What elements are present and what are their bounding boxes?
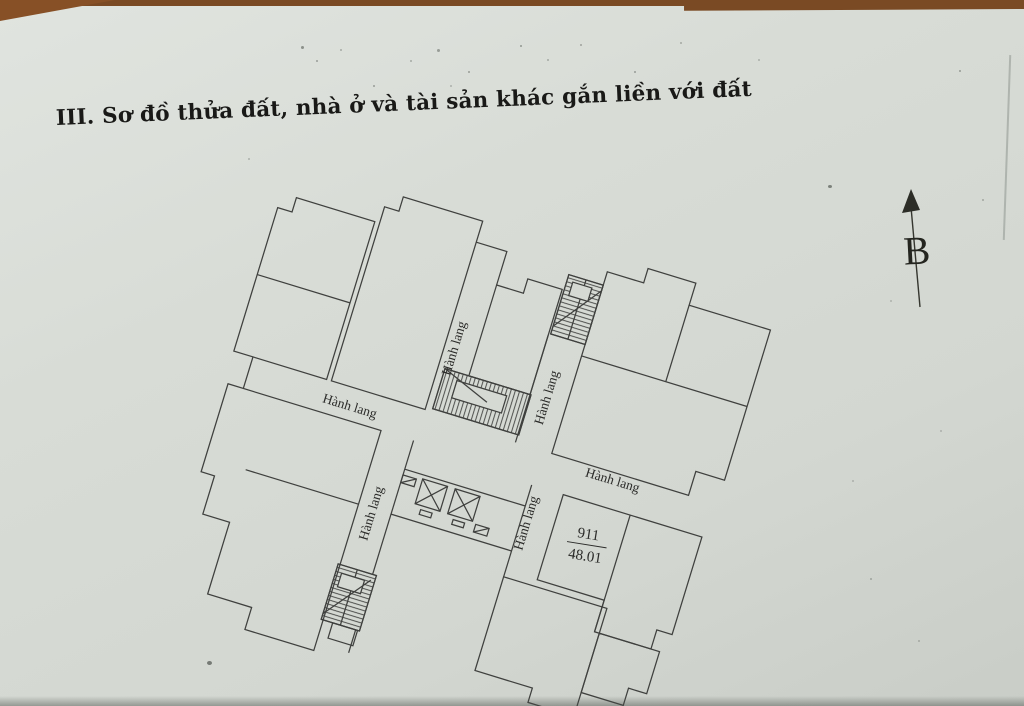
elevator-door-pockets bbox=[393, 475, 497, 536]
corridor-label-1: Hành lang bbox=[438, 319, 469, 377]
unit-area: 48.01 bbox=[567, 546, 603, 567]
scan-speck bbox=[852, 480, 854, 482]
scan-speck bbox=[959, 70, 961, 72]
scan-speck bbox=[547, 59, 549, 61]
wall-divider bbox=[246, 470, 359, 504]
scan-speck bbox=[580, 44, 582, 46]
scan-speck bbox=[634, 71, 636, 73]
north-label: B bbox=[902, 227, 931, 273]
north-arrow: B bbox=[902, 189, 931, 307]
scan-speck bbox=[207, 661, 212, 665]
floor-plan: Hành lang Hành lang Hành lang Hành lang … bbox=[157, 160, 777, 706]
staircase-symbol-southwest bbox=[321, 564, 376, 631]
scan-speck bbox=[437, 49, 440, 52]
scan-speck bbox=[890, 300, 892, 302]
scan-speck bbox=[373, 85, 375, 87]
corridor-label-2: Hành lang bbox=[321, 391, 379, 422]
scan-speck bbox=[301, 46, 304, 49]
scan-speck bbox=[828, 185, 832, 188]
scan-speck bbox=[680, 42, 682, 44]
scan-speck bbox=[450, 85, 452, 87]
scan-speck bbox=[758, 59, 760, 61]
staircase-symbol-central bbox=[433, 369, 531, 435]
staircase-symbol-northeast bbox=[551, 275, 604, 345]
wall-divider bbox=[582, 356, 747, 407]
floor-plan-drawing: Hành lang Hành lang Hành lang Hành lang … bbox=[0, 0, 1024, 706]
lobby-wall bbox=[405, 469, 525, 506]
lobby-wall bbox=[391, 514, 511, 551]
scanned-certificate-page: III. Sơ đồ thửa đất, nhà ở và tài sản kh… bbox=[0, 0, 1024, 706]
scan-speck bbox=[940, 430, 942, 432]
scan-speck bbox=[918, 640, 920, 642]
scan-speck bbox=[468, 71, 470, 73]
scan-speck bbox=[520, 45, 522, 47]
elevator-symbol-left bbox=[412, 479, 447, 520]
apartment-block-east bbox=[528, 495, 702, 654]
north-arrow-head bbox=[902, 189, 920, 213]
corridor-wall bbox=[243, 357, 253, 389]
scan-speck bbox=[316, 60, 318, 62]
wall-divider bbox=[666, 305, 689, 382]
apartment-block-south bbox=[471, 577, 607, 706]
unit-label: 911 48.01 bbox=[564, 524, 609, 568]
corridor-label-5: Hành lang bbox=[356, 484, 387, 542]
scan-speck bbox=[340, 49, 342, 51]
scan-speck bbox=[700, 88, 702, 90]
scan-speck bbox=[982, 199, 984, 201]
wall-divider bbox=[257, 275, 350, 303]
unit-number: 911 bbox=[576, 525, 600, 544]
corridor-label-4: Hành lang bbox=[584, 465, 642, 496]
corridor-wall bbox=[466, 242, 507, 285]
scan-speck bbox=[248, 158, 250, 160]
wall-divider bbox=[595, 515, 631, 632]
apartment-block-northwest bbox=[234, 193, 375, 379]
page-bottom-shadow bbox=[0, 696, 1024, 706]
scan-speck bbox=[870, 578, 872, 580]
scan-speck bbox=[410, 60, 412, 62]
elevator-symbol-right bbox=[445, 489, 480, 530]
